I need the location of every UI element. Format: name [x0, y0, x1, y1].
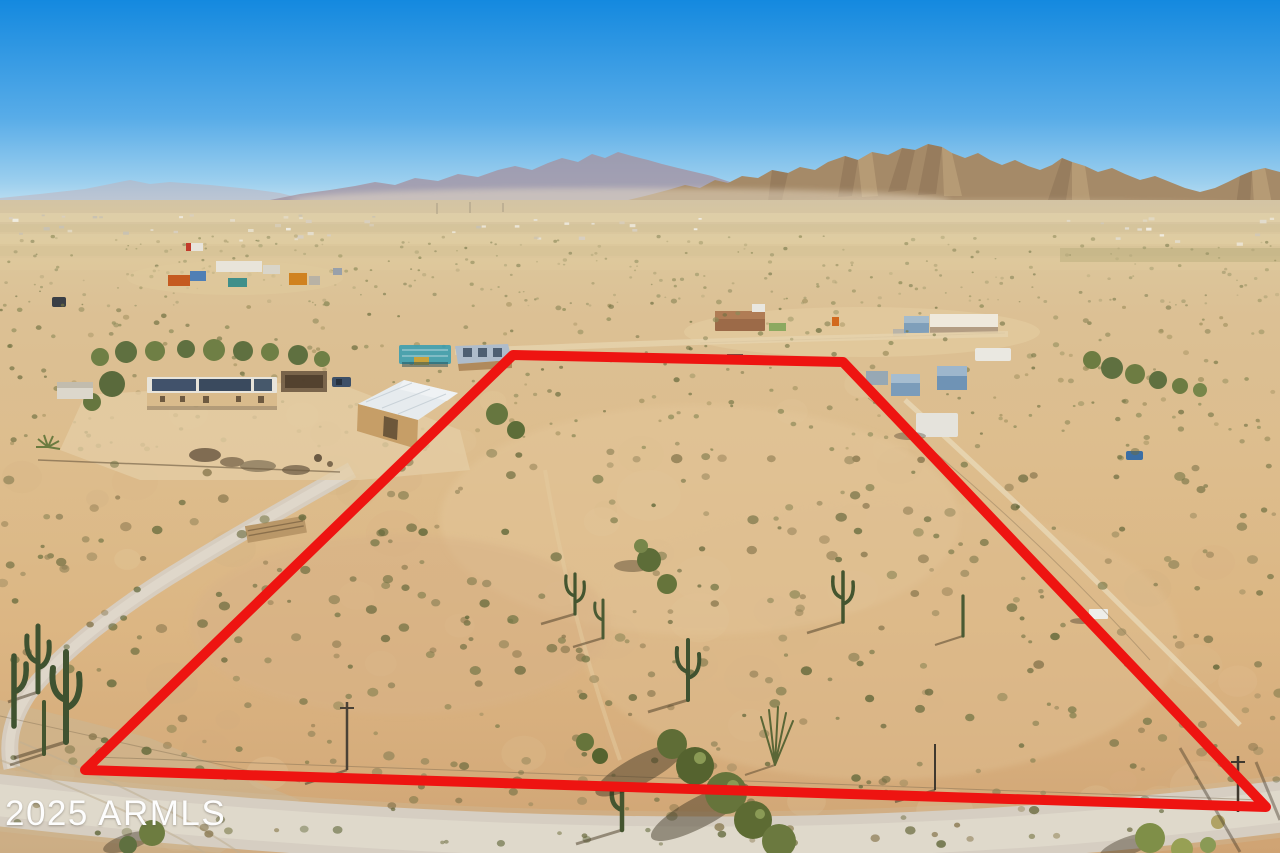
plain-banding — [0, 213, 1280, 270]
scrub-bush — [1173, 635, 1177, 638]
scrub-bush — [1251, 332, 1254, 335]
scrub-bush — [329, 595, 340, 604]
scrub-bush — [1033, 660, 1044, 669]
scrub-bush — [1192, 465, 1200, 471]
scrub-bush — [41, 368, 46, 372]
scrub-bush — [779, 308, 782, 310]
scrub-bush — [173, 304, 175, 305]
distant-structure — [151, 229, 154, 231]
scrub-bush — [925, 689, 934, 696]
scrub-bush — [181, 752, 187, 757]
distant-structure — [93, 216, 98, 218]
scrub-bush — [1143, 718, 1152, 725]
scrub-bush — [675, 442, 680, 446]
scrub-bush — [525, 373, 530, 377]
scrub-bush — [836, 513, 847, 522]
scrub-bush — [789, 590, 800, 599]
scrub-bush — [299, 698, 308, 705]
scrub-bush — [433, 293, 437, 296]
scrub-bush — [636, 265, 638, 267]
scrub-bush — [1018, 474, 1028, 482]
scrub-bush — [89, 733, 97, 740]
scrub-bush — [1021, 577, 1026, 581]
scrub-bush — [65, 745, 76, 753]
scrub-bush — [8, 344, 13, 348]
scrub-bush — [467, 577, 477, 585]
scrub-bush — [24, 434, 28, 437]
scrub-bush — [1131, 448, 1140, 455]
scrub-bush — [851, 774, 861, 782]
scrub-bush — [1065, 420, 1071, 425]
scrub-bush — [671, 454, 682, 463]
scrub-bush — [671, 299, 677, 304]
scrub-bush — [1213, 664, 1220, 669]
scrub-bush — [1129, 276, 1133, 279]
scrub-bush — [322, 244, 324, 245]
white-trailer — [216, 261, 262, 272]
scrub-bush — [51, 235, 55, 238]
scrub-bush — [958, 542, 963, 546]
scrub-bush — [868, 432, 874, 437]
scrub-bush — [801, 666, 812, 675]
scrub-bush — [316, 347, 320, 350]
scrub-bush — [793, 386, 798, 390]
scrub-bush — [44, 376, 47, 378]
scrub-bush — [1025, 373, 1029, 376]
scrub-bush — [610, 517, 618, 523]
scrub-bush — [1272, 512, 1277, 516]
scrub-bush — [1158, 734, 1167, 742]
scrub-bush — [536, 297, 539, 299]
scrub-bush — [707, 401, 712, 405]
scrub-bush — [161, 314, 167, 319]
scrub-bush — [419, 560, 424, 564]
scrub-bush — [878, 296, 882, 299]
scrub-bush — [702, 473, 710, 480]
scrub-bush — [995, 276, 997, 278]
scrub-bush — [769, 367, 772, 369]
scrub-bush — [114, 549, 140, 570]
scrub-bush — [1239, 439, 1244, 443]
scrub-bush — [479, 713, 483, 716]
scrub-bush — [388, 539, 393, 543]
scrub-bush — [108, 623, 117, 630]
scrub-bush — [20, 239, 24, 242]
scrub-bush — [695, 273, 699, 276]
scrub-bush — [504, 264, 507, 267]
scrub-bush — [1244, 377, 1249, 381]
scrub-bush — [694, 414, 699, 418]
scrub-bush — [1032, 721, 1039, 726]
scrub-bush — [107, 679, 117, 687]
scrub-bush — [966, 836, 973, 842]
scrub-bush — [1088, 300, 1091, 303]
scrub-bush — [41, 545, 45, 548]
scrub-bush — [980, 539, 989, 546]
scrub-bush — [1115, 257, 1119, 260]
distant-structure — [327, 234, 331, 236]
scrub-bush — [163, 342, 168, 346]
scrub-bush — [55, 268, 59, 271]
scrub-bush — [98, 538, 104, 542]
scrub-bush — [688, 393, 692, 396]
scrub-bush — [350, 576, 357, 582]
scrub-bush — [933, 333, 936, 336]
scrub-bush — [277, 568, 282, 572]
scrub-bush — [607, 462, 614, 468]
scrub-bush — [465, 616, 470, 620]
scrub-bush — [163, 742, 172, 749]
scrub-bush — [824, 321, 830, 326]
scrub-bush — [861, 552, 868, 558]
solar-house — [147, 377, 277, 410]
scrub-bush — [1004, 419, 1008, 422]
scrub-bush — [943, 337, 948, 341]
scrub-bush — [55, 237, 58, 239]
scrub-bush — [42, 414, 46, 417]
orange-container — [168, 275, 190, 286]
scrub-bush — [1218, 247, 1220, 249]
scrub-bush — [246, 305, 251, 309]
scrub-bush — [1206, 252, 1210, 255]
scrub-bush — [211, 236, 214, 238]
teal-container — [228, 278, 247, 287]
scrub-bush — [140, 244, 142, 245]
scrub-bush — [1068, 379, 1074, 384]
scrub-bush — [197, 619, 208, 628]
scrub-bush — [28, 301, 30, 303]
blue-roof-shed-top — [904, 316, 929, 323]
scrub-bush — [659, 279, 663, 282]
scrub-bush — [38, 555, 44, 559]
scrub-bush — [613, 294, 616, 296]
scrub-bush — [1198, 403, 1201, 406]
scrub-bush — [1, 521, 8, 527]
scrub-bush — [645, 828, 650, 832]
scrub-bush — [253, 584, 258, 588]
scrub-bush — [418, 592, 427, 599]
scrub-bush — [787, 527, 797, 535]
scrub-bush — [1134, 263, 1136, 265]
scrub-bush — [869, 650, 875, 655]
scrub-bush — [831, 301, 836, 305]
distant-structure — [174, 231, 178, 233]
scrub-bush — [976, 250, 980, 253]
scrub-bush — [321, 326, 325, 330]
scrub-bush — [650, 302, 654, 305]
scrub-bush — [836, 717, 840, 720]
white-shed-small — [263, 265, 280, 274]
scrub-bush — [796, 605, 805, 612]
scrub-bush — [6, 561, 15, 568]
scrub-bush — [785, 504, 793, 510]
scrub-bush — [118, 324, 121, 327]
scrub-bush — [557, 831, 562, 835]
scrub-bush — [387, 491, 395, 498]
scrub-bush — [633, 456, 641, 462]
scrub-bush — [260, 515, 270, 523]
scrub-bush — [816, 328, 822, 333]
scrub-bush — [1122, 399, 1128, 404]
scrub-bush — [572, 434, 576, 437]
scrub-bush — [1040, 595, 1044, 599]
scrub-bush — [482, 580, 491, 588]
scrub-bush — [523, 291, 525, 292]
scrub-bush — [946, 393, 949, 395]
scrub-bush — [703, 511, 709, 516]
scrub-bush — [338, 254, 342, 257]
scrub-bush — [703, 336, 708, 340]
scrub-bush — [816, 283, 819, 285]
scrub-bush — [1117, 247, 1119, 249]
scrub-bush — [578, 330, 584, 335]
scrub-bush — [971, 411, 975, 414]
scrub-bush — [1191, 545, 1235, 580]
scrub-bush — [629, 266, 631, 268]
scrub-bush — [63, 644, 69, 649]
scrub-bush — [932, 832, 938, 837]
scrub-bush — [629, 694, 638, 701]
scrub-bush — [82, 293, 86, 296]
scrub-bush — [1047, 703, 1051, 706]
distant-structure — [364, 220, 370, 223]
scrub-bush — [1153, 583, 1158, 587]
scrub-bush — [234, 636, 242, 643]
scrub-bush — [397, 315, 400, 317]
scrub-bush — [458, 487, 463, 491]
scrub-bush — [1199, 323, 1203, 326]
scrub-bush — [185, 324, 189, 327]
scrub-bush — [668, 620, 673, 624]
scrub-bush — [1069, 354, 1073, 357]
scrub-bush — [1127, 827, 1133, 832]
scrub-bush — [606, 449, 614, 455]
scrub-bush — [860, 301, 863, 303]
green-lawn-patch — [769, 323, 786, 331]
scrub-bush — [999, 414, 1002, 417]
scrub-bush — [1244, 284, 1247, 286]
scrub-bush — [848, 653, 859, 662]
scrub-bush — [370, 269, 373, 271]
scrub-bush — [480, 288, 484, 291]
scrub-bush — [1113, 475, 1119, 480]
scrub-bush — [594, 252, 597, 255]
scrub-bush — [898, 293, 901, 295]
scrub-bush — [1138, 728, 1145, 734]
scrub-bush — [123, 315, 129, 320]
scrub-bush — [866, 780, 871, 784]
scrub-bush — [651, 284, 653, 285]
distant-structure — [1067, 220, 1071, 222]
scrub-bush — [581, 752, 587, 757]
distant-structure — [1260, 220, 1267, 224]
scrub-bush — [1016, 505, 1020, 508]
scrub-bush — [1169, 301, 1171, 303]
scrub-bush — [899, 780, 908, 787]
scrub-bush — [518, 291, 520, 293]
scrub-bush — [495, 724, 500, 728]
scrub-bush — [674, 377, 680, 382]
scrub-bush — [434, 250, 437, 252]
scrub-bush — [1171, 247, 1173, 249]
scrub-bush — [550, 423, 553, 425]
scrub-bush — [1204, 359, 1209, 363]
scrub-bush — [999, 282, 1003, 285]
scrub-bush — [1261, 507, 1267, 512]
scrub-bush — [156, 624, 167, 633]
scrub-bush — [1109, 299, 1111, 301]
scrub-bush — [257, 240, 260, 242]
scrub-bush — [1172, 416, 1176, 419]
scrub-bush — [506, 471, 516, 479]
scrub-bush — [101, 610, 108, 616]
scrub-bush — [134, 587, 141, 593]
scrub-bush — [1159, 809, 1164, 813]
scrub-bush — [1239, 589, 1246, 594]
scrub-bush — [642, 446, 646, 449]
scrub-bush — [905, 262, 909, 265]
scrub-bush — [764, 277, 767, 280]
scrub-bush — [826, 277, 830, 280]
scrub-bush — [751, 252, 753, 254]
scrub-bush — [1028, 640, 1032, 643]
scrub-bush — [520, 244, 522, 246]
scrub-bush — [4, 281, 8, 284]
scrub-bush — [1065, 253, 1069, 256]
scrub-bush — [43, 514, 50, 519]
scrub-bush — [300, 566, 310, 574]
scrub-bush — [275, 243, 278, 245]
scrub-bush — [312, 302, 314, 304]
scrub-bush — [1053, 833, 1060, 839]
scrub-bush — [985, 281, 989, 284]
distant-structure — [372, 216, 375, 218]
scrub-bush — [852, 289, 856, 292]
scrub-bush — [945, 292, 947, 294]
distant-structure — [13, 219, 19, 222]
scrub-bush — [979, 304, 984, 308]
scrub-bush — [216, 710, 240, 729]
scrub-bush — [126, 248, 128, 250]
scrub-bush — [1202, 319, 1205, 321]
scrub-bush — [909, 284, 913, 287]
scrub-bush — [49, 282, 53, 285]
scrub-bush — [659, 842, 663, 845]
distant-structure — [239, 240, 243, 242]
scrub-bush — [1248, 743, 1258, 751]
scrub-bush — [1218, 666, 1257, 697]
scrub-bush — [169, 329, 174, 333]
scrub-bush — [1019, 301, 1021, 302]
scrub-bush — [735, 311, 740, 315]
scrub-bush — [747, 546, 757, 554]
scrub-bush — [521, 757, 531, 765]
scrub-bush — [1107, 277, 1110, 280]
scrub-bush — [1029, 834, 1035, 839]
scrub-bush — [233, 363, 237, 366]
scrub-bush — [501, 736, 546, 772]
scrub-bush — [1185, 304, 1188, 306]
scrub-bush — [469, 637, 474, 641]
scrub-bush — [431, 599, 440, 606]
scrub-bush — [305, 761, 309, 765]
scrub-bush — [9, 366, 14, 370]
scrub-bush — [593, 475, 604, 484]
scrub-bush — [536, 261, 538, 263]
scrub-bush — [680, 278, 684, 281]
adobe-house-roof — [715, 311, 765, 319]
scrub-bush — [965, 714, 974, 722]
scrub-bush — [312, 349, 317, 353]
scrub-bush — [1190, 248, 1193, 250]
scrub-bush — [957, 397, 961, 400]
white-trailer-large — [916, 413, 958, 437]
scrub-bush — [1030, 758, 1036, 763]
scrub-bush — [497, 840, 505, 847]
scrub-bush — [1254, 693, 1261, 698]
scrub-bush — [971, 256, 974, 259]
scrub-bush — [156, 240, 160, 243]
scrub-bush — [969, 556, 978, 564]
scrub-bush — [1091, 401, 1094, 403]
scrub-bush — [490, 289, 492, 291]
scrub-bush — [1198, 721, 1207, 728]
distant-structure — [62, 216, 66, 218]
scrub-bush — [629, 276, 632, 278]
scrub-bush — [918, 554, 929, 563]
scrub-bush — [515, 666, 526, 675]
scrub-bush — [767, 598, 774, 603]
scrub-bush — [408, 285, 412, 288]
scrub-bush — [570, 302, 572, 304]
scrub-bush — [723, 313, 728, 317]
tree — [507, 421, 525, 439]
scrub-bush — [430, 647, 437, 653]
scrub-bush — [713, 317, 719, 322]
scrub-bush — [434, 525, 439, 529]
scrub-bush — [882, 776, 891, 783]
scrub-bush — [311, 724, 315, 727]
scrub-bush — [903, 507, 913, 515]
scrub-bush — [918, 312, 921, 315]
scrub-bush — [1112, 531, 1120, 537]
pickup-cab — [336, 379, 342, 385]
scrub-bush — [547, 644, 558, 653]
scrub-bush — [11, 328, 16, 332]
scrub-bush — [1031, 353, 1036, 357]
scrub-bush — [1099, 339, 1102, 342]
scrub-bush — [170, 249, 172, 251]
scrub-bush — [877, 414, 881, 417]
distant-structure — [699, 218, 702, 220]
scrub-bush — [17, 375, 22, 379]
scrub-bush — [1237, 294, 1239, 296]
scrub-bush — [70, 254, 73, 256]
scrub-bush — [1038, 589, 1043, 593]
scrub-bush — [743, 248, 745, 250]
scrub-bush — [39, 291, 41, 293]
scrub-bush — [905, 826, 916, 834]
scrub-bush — [1069, 713, 1076, 719]
scrub-bush — [183, 260, 187, 263]
scrub-bush — [415, 250, 419, 253]
scrub-bush — [765, 677, 773, 683]
scrub-bush — [651, 503, 656, 507]
scrub-bush — [524, 299, 527, 302]
scrub-bush — [730, 405, 733, 407]
scrub-bush — [308, 300, 311, 302]
scrub-bush — [827, 405, 833, 410]
